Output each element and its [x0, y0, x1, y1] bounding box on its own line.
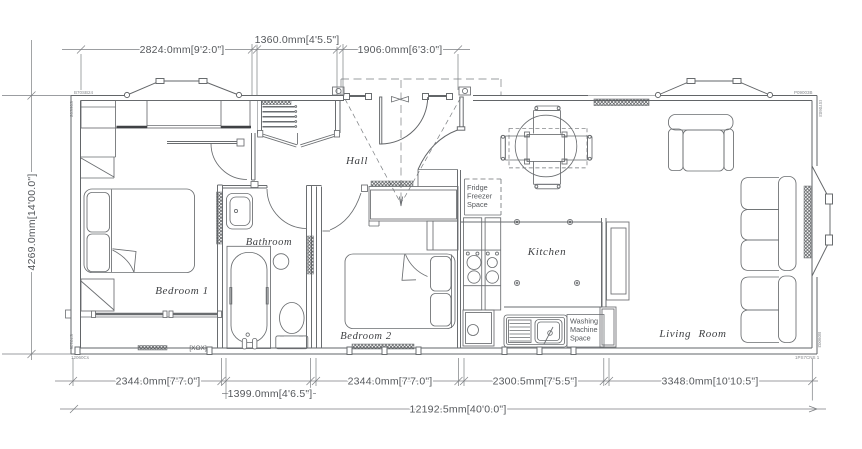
svg-text:S06S03: S06S03 [69, 101, 74, 118]
svg-text:Space: Space [570, 334, 591, 343]
svg-text:12060Cs: 12060Cs [71, 355, 90, 360]
svg-text:1360.0mm[4'5.5"]: 1360.0mm[4'5.5"] [255, 34, 340, 46]
svg-text:P09003B: P09003B [794, 90, 813, 95]
svg-text:2344.0mm[7'7.0"]: 2344.0mm[7'7.0"] [116, 376, 201, 388]
svg-text:S70125: S70125 [69, 334, 74, 350]
svg-text:2300.5mm[7'5.5"]: 2300.5mm[7'5.5"] [493, 376, 578, 388]
svg-text:2824.0mm[9'2.0"]: 2824.0mm[9'2.0"] [140, 44, 225, 56]
svg-text:Hall: Hall [345, 155, 368, 167]
svg-text:Kitchen: Kitchen [527, 246, 566, 258]
svg-text:B70SB24: B70SB24 [74, 90, 94, 95]
svg-text:1PS7CNS 1: 1PS7CNS 1 [795, 355, 820, 360]
svg-text:Bathroom: Bathroom [246, 237, 292, 248]
svg-text:2344.0mm[7'7.0"]: 2344.0mm[7'7.0"] [348, 376, 433, 388]
svg-text:3348.0mm[10'10.5"]: 3348.0mm[10'10.5"] [662, 376, 759, 388]
svg-text:Space: Space [467, 200, 488, 209]
svg-text:Bedroom 1: Bedroom 1 [155, 285, 209, 297]
svg-text:1906.0mm[6'3.0"]: 1906.0mm[6'3.0"] [358, 44, 443, 56]
svg-text:B09003: B09003 [817, 332, 822, 348]
svg-text:[XOX]: [XOX] [189, 345, 207, 352]
svg-text:IS70603: IS70603 [818, 100, 823, 117]
svg-text:4269.0mm[14'00.0"]: 4269.0mm[14'00.0"] [26, 174, 38, 271]
svg-text:Living Room: Living Room [658, 328, 726, 340]
svg-text:12192.5mm[40'0.0"]: 12192.5mm[40'0.0"] [410, 404, 507, 416]
svg-text:1399.0mm[4'6.5"]: 1399.0mm[4'6.5"] [228, 388, 313, 400]
svg-text:Bedroom 2: Bedroom 2 [340, 331, 392, 342]
